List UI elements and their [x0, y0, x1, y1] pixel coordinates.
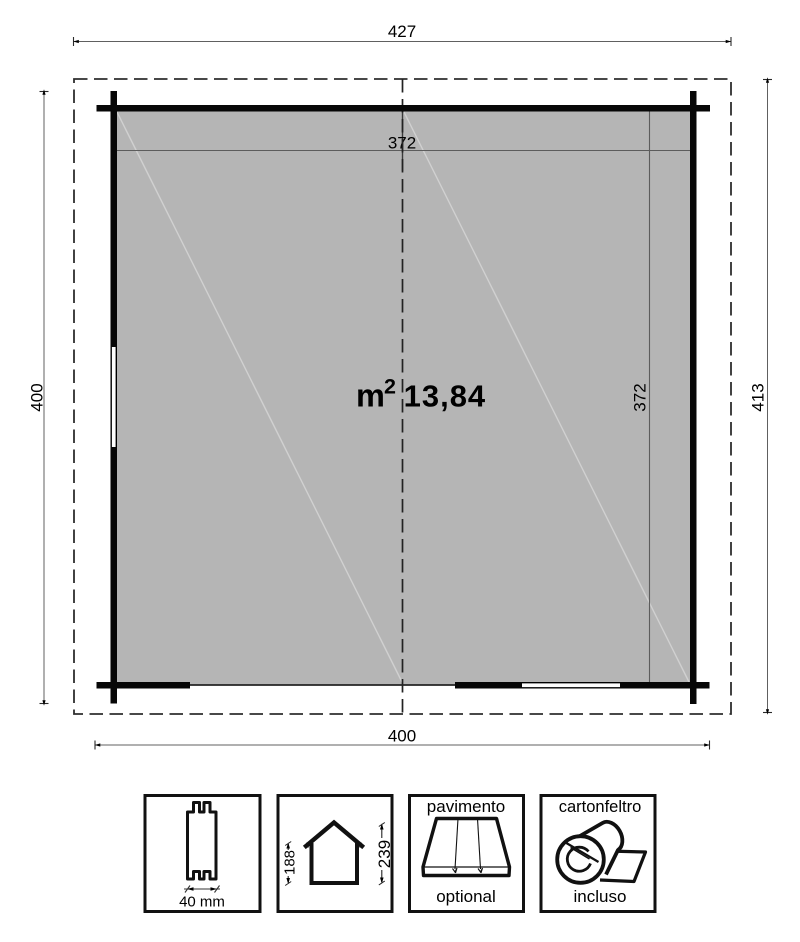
svg-text:2: 2 — [384, 375, 396, 399]
svg-text:m: m — [356, 378, 385, 414]
svg-text:239: 239 — [375, 840, 394, 868]
svg-text:13,84: 13,84 — [404, 379, 487, 414]
svg-text:cartonfeltro: cartonfeltro — [559, 798, 642, 816]
svg-text:188: 188 — [282, 850, 299, 875]
svg-text:400: 400 — [388, 727, 416, 746]
svg-text:40 mm: 40 mm — [179, 894, 225, 911]
svg-text:400: 400 — [28, 383, 47, 411]
svg-text:optional: optional — [436, 887, 496, 906]
svg-text:incluso: incluso — [574, 887, 627, 906]
svg-text:427: 427 — [388, 22, 416, 41]
svg-text:372: 372 — [631, 383, 650, 411]
svg-text:413: 413 — [749, 383, 768, 411]
svg-text:pavimento: pavimento — [427, 797, 505, 816]
